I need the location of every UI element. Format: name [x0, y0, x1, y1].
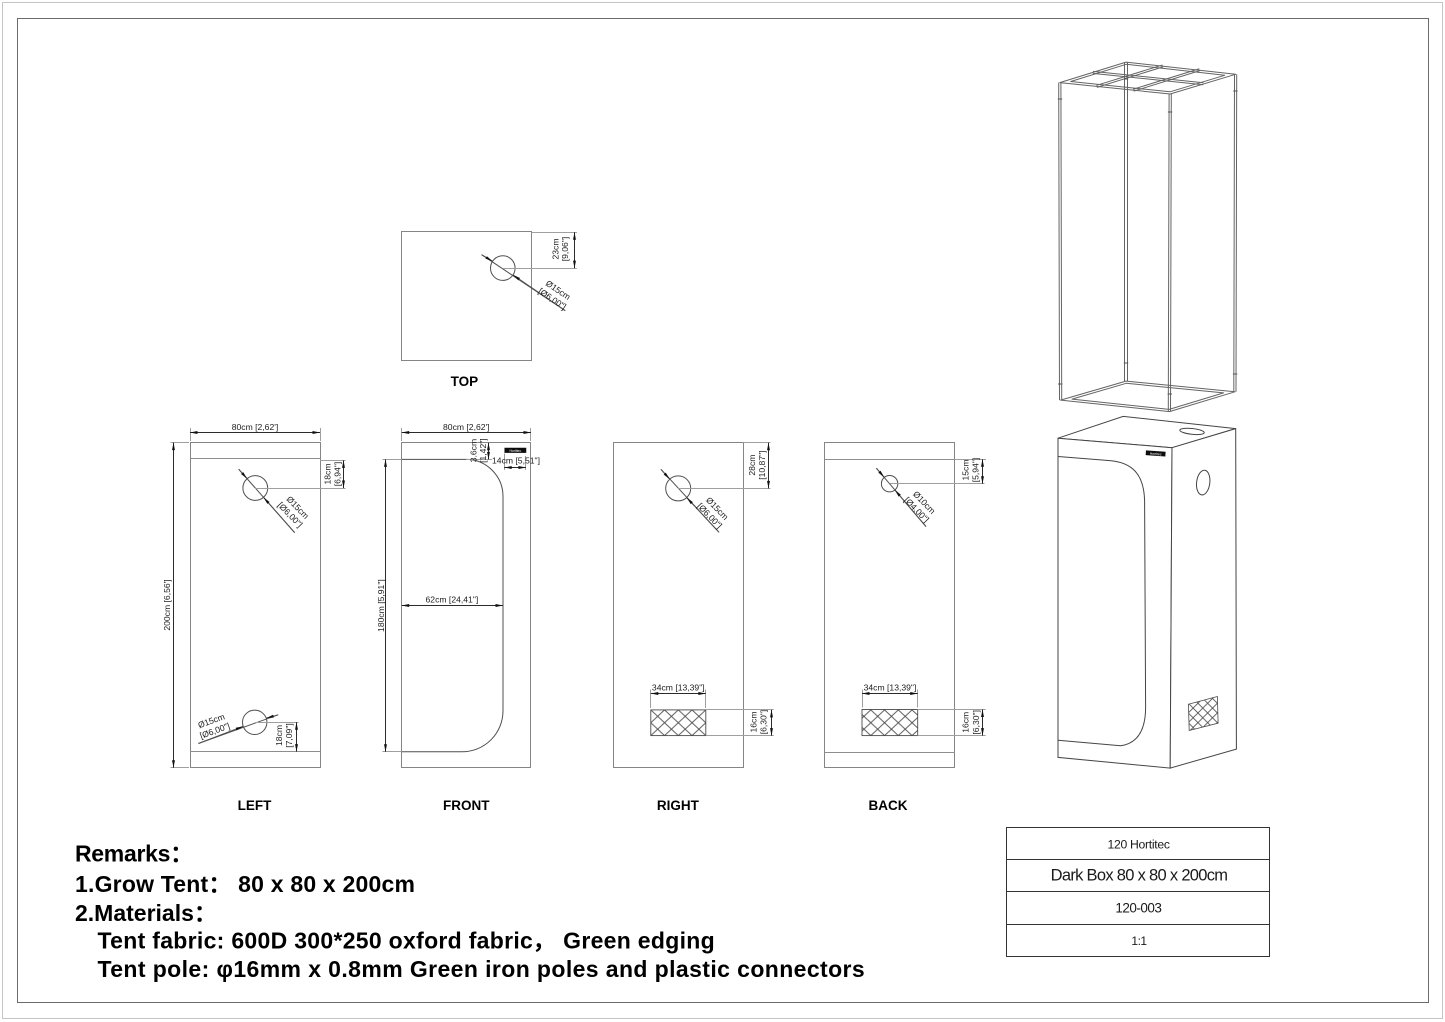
svg-text:16cm: 16cm — [960, 712, 970, 733]
svg-text:FRONT: FRONT — [443, 798, 490, 813]
svg-text:80cm [2,62']: 80cm [2,62'] — [232, 422, 279, 432]
svg-text:1.Grow Tent： 80 x 80 x 200cm: 1.Grow Tent： 80 x 80 x 200cm — [75, 871, 415, 897]
svg-text:80cm [2,62']: 80cm [2,62'] — [443, 422, 490, 432]
svg-text:2.Materials：: 2.Materials： — [75, 900, 217, 926]
svg-text:[6,30"]: [6,30"] — [971, 710, 981, 735]
svg-text:[9,06"]: [9,06"] — [560, 237, 570, 262]
svg-text:[5,94"]: [5,94"] — [970, 458, 980, 483]
svg-text:200cm [6,56']: 200cm [6,56'] — [162, 579, 172, 630]
svg-text:3.6cm: 3.6cm — [468, 439, 478, 462]
svg-text:Hortitec: Hortitec — [1150, 452, 1162, 457]
svg-text:[6,94"]: [6,94"] — [332, 462, 342, 487]
svg-text:[1,42"]: [1,42"] — [478, 438, 488, 463]
svg-text:[7,09"]: [7,09"] — [284, 723, 294, 748]
svg-text:TOP: TOP — [451, 374, 479, 389]
svg-text:Dark Box 80 x 80 x 200cm: Dark Box 80 x 80 x 200cm — [1051, 866, 1228, 884]
svg-text:BACK: BACK — [869, 798, 908, 813]
svg-text:Tent pole: φ16mm x 0.8mm Green: Tent pole: φ16mm x 0.8mm Green iron pole… — [98, 956, 866, 982]
svg-text:15cm: 15cm — [961, 459, 971, 480]
svg-text:Hortitec: Hortitec — [509, 449, 521, 453]
svg-text:28cm: 28cm — [747, 455, 757, 476]
svg-text:34cm [13,39"]: 34cm [13,39"] — [652, 682, 705, 692]
svg-text:180cm [5,91"]: 180cm [5,91"] — [376, 579, 386, 632]
svg-text:Tent fabric: 600D 300*250 oxfo: Tent fabric: 600D 300*250 oxford fabric，… — [98, 928, 715, 954]
svg-text:LEFT: LEFT — [238, 798, 272, 813]
svg-text:[6,30"]: [6,30"] — [759, 710, 769, 735]
svg-text:18cm: 18cm — [274, 725, 284, 746]
svg-text:14cm [5,51"]: 14cm [5,51"] — [492, 455, 540, 465]
svg-text:23cm: 23cm — [550, 238, 560, 259]
svg-text:18cm: 18cm — [323, 463, 333, 484]
svg-text:120-003: 120-003 — [1115, 901, 1161, 916]
svg-text:RIGHT: RIGHT — [657, 798, 700, 813]
svg-text:34cm [13,39"]: 34cm [13,39"] — [864, 682, 917, 692]
svg-text:1:1: 1:1 — [1131, 934, 1147, 948]
svg-text:[10,87"]: [10,87"] — [757, 450, 767, 479]
svg-text:120 Hortitec: 120 Hortitec — [1108, 837, 1170, 851]
svg-text:Remarks：: Remarks： — [75, 841, 193, 867]
svg-text:62cm [24,41"]: 62cm [24,41"] — [426, 595, 479, 605]
svg-text:16cm: 16cm — [748, 711, 758, 732]
